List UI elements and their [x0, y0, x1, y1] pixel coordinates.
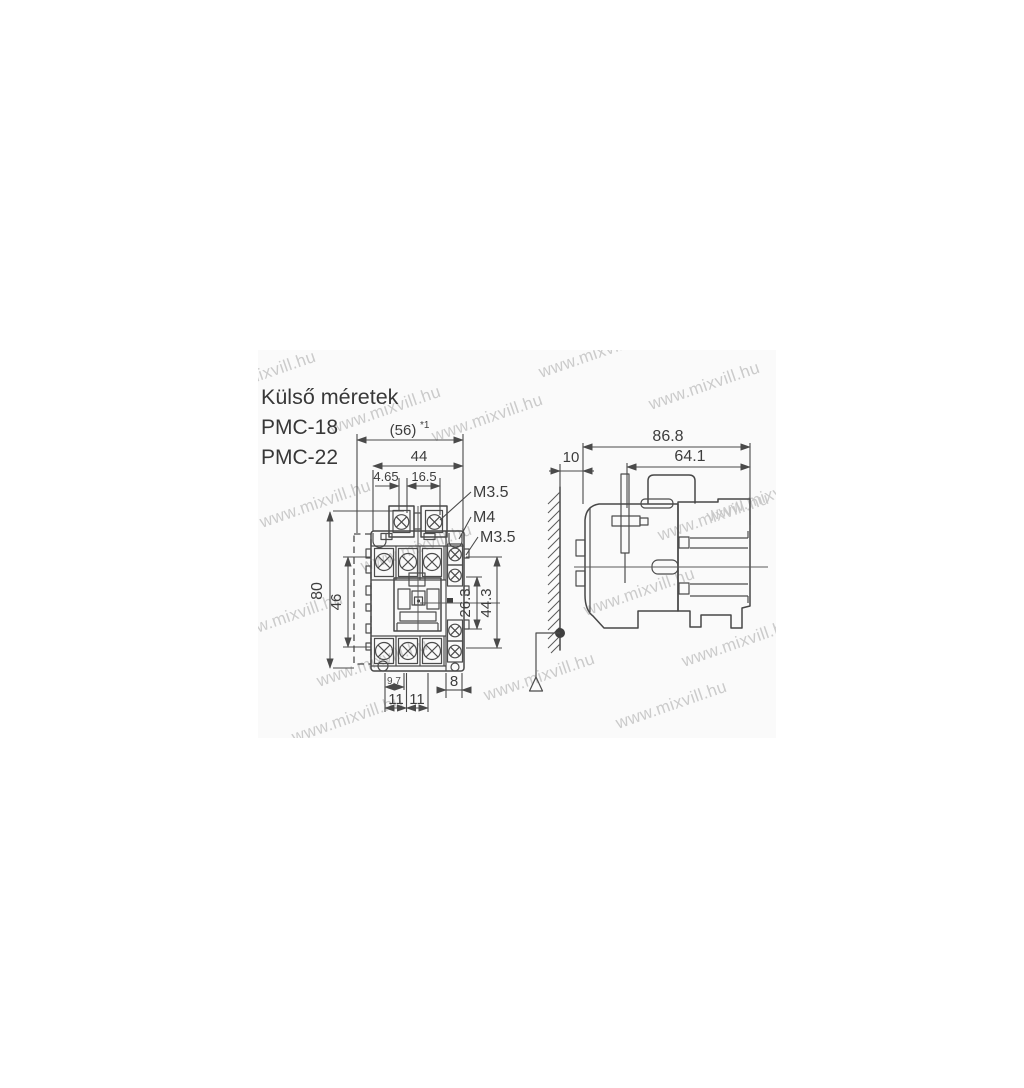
dim-width-total: (56) [390, 422, 417, 439]
dim-depth-total: 86.8 [652, 428, 683, 445]
dim-width-total-note: *1 [420, 420, 430, 431]
dim-wall-clearance: 10 [563, 449, 580, 466]
page-title: Külső méretek [261, 385, 399, 409]
dim-hole-pitch-right: 11 [409, 691, 425, 708]
dim-aux-span-outer: 44.3 [478, 588, 495, 617]
model-label-pmc18: PMC-18 [261, 416, 338, 439]
dim-aux-span-inner: 26.3 [457, 588, 474, 617]
dimension-drawing: www.mixvill.hu www.mixvill.hu www.mixvil… [0, 0, 1024, 1088]
label-mounting-screw: M4 [473, 509, 495, 526]
dim-hole-pitch-left: 11 [388, 691, 404, 708]
dim-depth-body: 64.1 [674, 448, 705, 465]
dim-aux-width: 8 [450, 673, 458, 690]
label-coil-screw: M3.5 [473, 484, 509, 501]
dim-coil-offset: 4.65 [373, 469, 398, 484]
label-aux-screw: M3.5 [480, 529, 516, 546]
model-label-pmc22: PMC-22 [261, 446, 338, 469]
dim-coil-pitch: 16.5 [411, 469, 436, 484]
dim-width-inner: 44 [411, 448, 428, 465]
dim-height-inner: 46 [328, 594, 345, 611]
dim-height-total: 80 [309, 582, 326, 600]
dim-foot-offset: 9.7 [387, 676, 401, 687]
